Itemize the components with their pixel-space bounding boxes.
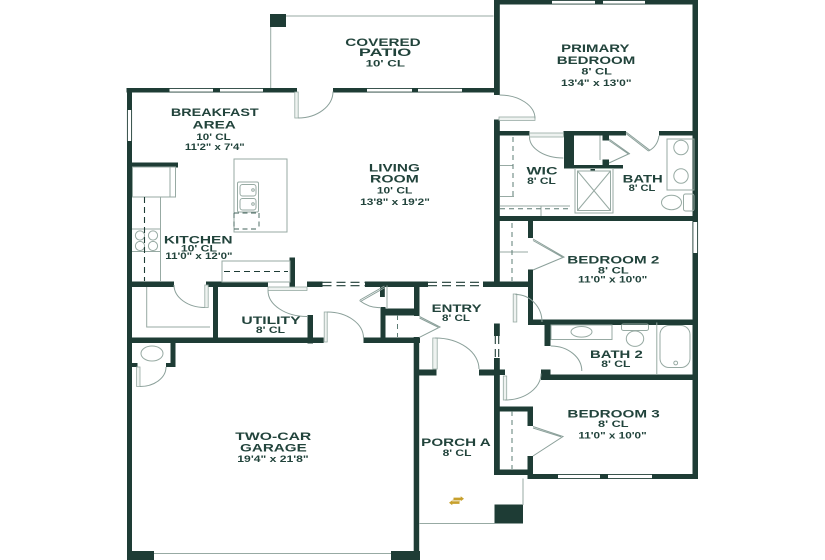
svg-text:GARAGE: GARAGE [240, 442, 307, 454]
svg-text:TWO-CAR: TWO-CAR [235, 431, 311, 443]
svg-text:ROOM: ROOM [370, 174, 419, 186]
svg-text:AREA: AREA [193, 119, 236, 131]
svg-text:19'4" x 21'8": 19'4" x 21'8" [237, 454, 308, 464]
svg-text:8' CL: 8' CL [442, 313, 470, 323]
svg-text:11'0" x 10'0": 11'0" x 10'0" [578, 431, 646, 441]
svg-text:13'8" x 19'2": 13'8" x 19'2" [360, 197, 430, 207]
svg-text:LIVING: LIVING [369, 162, 420, 174]
svg-text:11'2" x 7'4": 11'2" x 7'4" [185, 142, 245, 152]
svg-text:10' CL: 10' CL [366, 58, 406, 68]
svg-text:8' CL: 8' CL [256, 325, 286, 335]
svg-text:8' CL: 8' CL [601, 359, 631, 369]
svg-text:10' CL: 10' CL [196, 132, 231, 142]
svg-text:PATIO: PATIO [359, 47, 412, 59]
svg-text:BEDROOM: BEDROOM [557, 55, 636, 67]
svg-text:11'0" x 12'0": 11'0" x 12'0" [165, 251, 232, 261]
svg-text:8' CL: 8' CL [581, 66, 612, 76]
svg-text:8' CL: 8' CL [598, 419, 629, 429]
svg-text:BREAKFAST: BREAKFAST [171, 107, 259, 119]
svg-text:10' CL: 10' CL [377, 185, 413, 195]
svg-text:11'0" x 10'0": 11'0" x 10'0" [578, 274, 647, 284]
svg-text:8' CL: 8' CL [443, 448, 472, 458]
svg-text:13'4" x 13'0": 13'4" x 13'0" [561, 78, 632, 88]
svg-text:8' CL: 8' CL [527, 176, 556, 186]
svg-text:8' CL: 8' CL [629, 183, 656, 193]
svg-text:PRIMARY: PRIMARY [561, 43, 630, 55]
